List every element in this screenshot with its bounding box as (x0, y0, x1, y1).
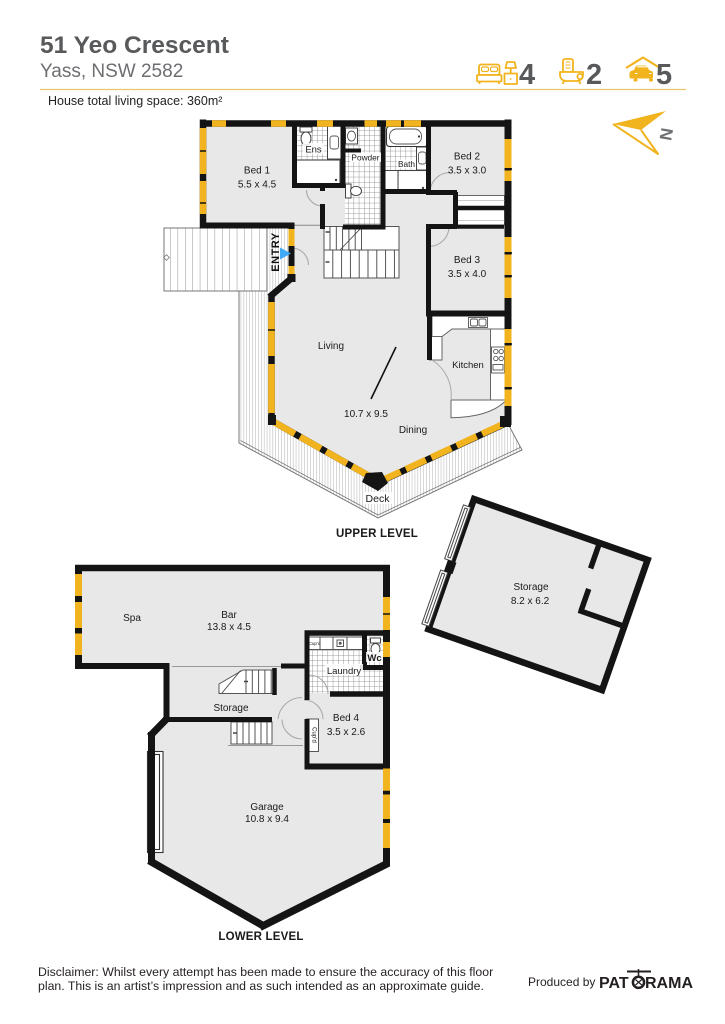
svg-text:8.2 x 6.2: 8.2 x 6.2 (511, 596, 550, 607)
svg-text:10.7 x 9.5: 10.7 x 9.5 (344, 409, 388, 420)
svg-text:51 Yeo Crescent: 51 Yeo Crescent (40, 32, 229, 59)
svg-text:Bar: Bar (221, 610, 237, 621)
svg-text:Storage: Storage (213, 703, 248, 714)
svg-text:Deck: Deck (366, 493, 391, 505)
svg-text:Bath: Bath (398, 159, 415, 169)
svg-text:Yass, NSW 2582: Yass, NSW 2582 (40, 61, 183, 82)
svg-text:RAMA: RAMA (645, 975, 693, 992)
svg-text:Wc: Wc (367, 653, 381, 664)
svg-text:Powder: Powder (351, 153, 379, 163)
svg-text:Cup’d: Cup’d (311, 727, 317, 743)
svg-text:13.8 x 4.5: 13.8 x 4.5 (207, 622, 251, 633)
svg-text:Storage: Storage (513, 582, 548, 593)
svg-text:PAT: PAT (599, 975, 629, 992)
svg-text:Bed 4: Bed 4 (333, 713, 360, 724)
svg-text:Produced by: Produced by (528, 975, 595, 989)
svg-text:3.5 x 4.0: 3.5 x 4.0 (448, 269, 487, 280)
svg-text:ENTRY: ENTRY (270, 232, 282, 272)
svg-text:Kitchen: Kitchen (452, 360, 484, 371)
svg-text:10.8 x 9.4: 10.8 x 9.4 (245, 814, 289, 825)
svg-text:Garage: Garage (250, 802, 284, 813)
svg-text:plan. This is an artist’s impr: plan. This is an artist’s impression and… (38, 979, 484, 993)
svg-text:Bed 2: Bed 2 (454, 152, 481, 163)
svg-text:Cup’d: Cup’d (309, 641, 321, 646)
svg-text:Dining: Dining (399, 425, 427, 436)
svg-text:Laundry: Laundry (327, 666, 362, 677)
svg-text:Disclaimer: Whilst every attem: Disclaimer: Whilst every attempt has bee… (38, 965, 493, 979)
svg-text:Bed 3: Bed 3 (454, 255, 481, 266)
svg-text:Bed 1: Bed 1 (244, 166, 271, 177)
svg-text:3.5 x 3.0: 3.5 x 3.0 (448, 166, 487, 177)
svg-text:Spa: Spa (123, 613, 141, 624)
svg-text:5: 5 (656, 59, 672, 91)
svg-text:Ens: Ens (305, 145, 322, 156)
svg-text:5.5 x 4.5: 5.5 x 4.5 (238, 180, 277, 191)
svg-text:UPPER LEVEL: UPPER LEVEL (336, 528, 418, 540)
svg-text:2: 2 (586, 59, 602, 91)
svg-text:House total living space: 360m: House total living space: 360m² (48, 94, 222, 108)
svg-text:3.5 x 2.6: 3.5 x 2.6 (327, 727, 366, 738)
svg-text:LOWER LEVEL: LOWER LEVEL (218, 931, 303, 943)
svg-text:Living: Living (318, 341, 344, 352)
svg-text:4: 4 (519, 59, 535, 91)
